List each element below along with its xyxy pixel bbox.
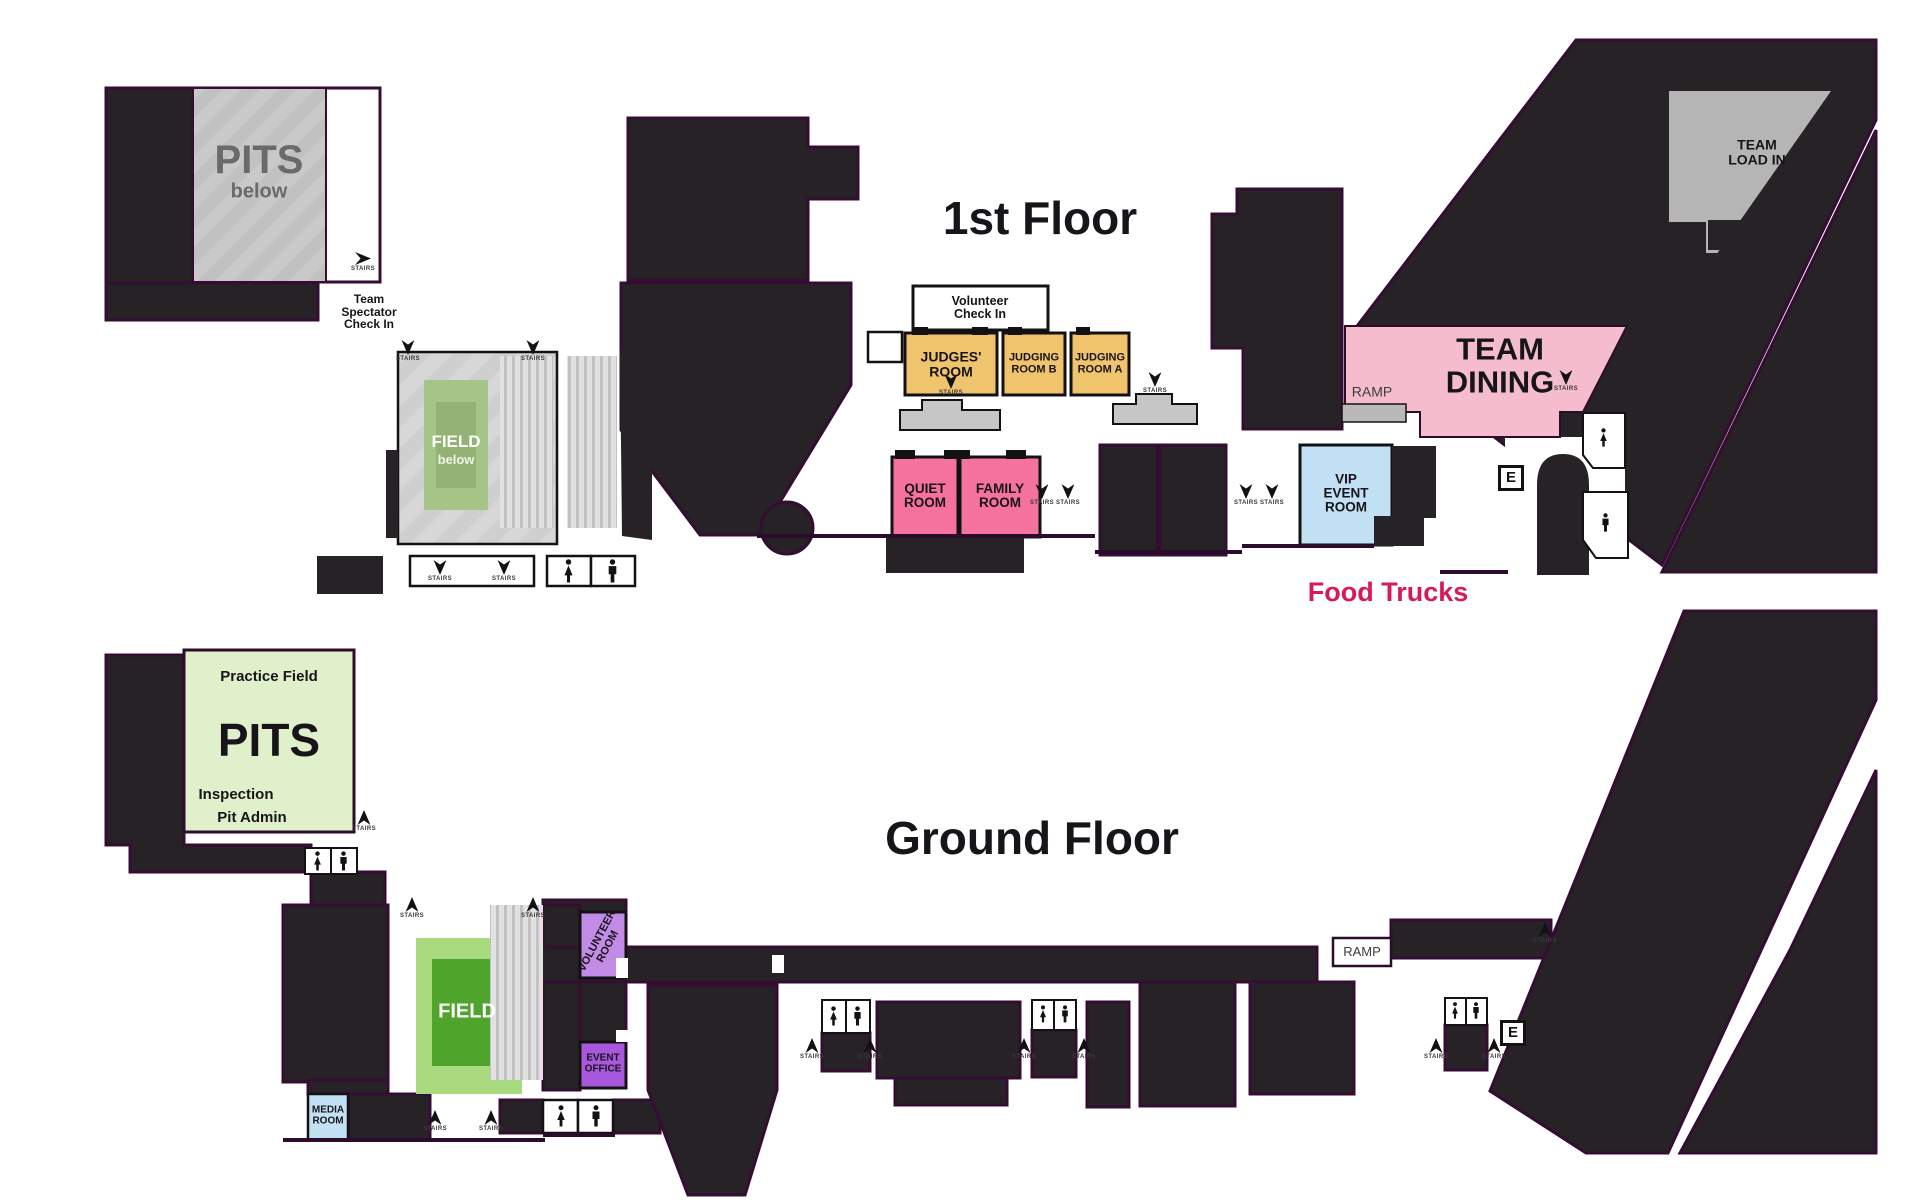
stairs-marker: STAIRS <box>1482 1038 1506 1060</box>
stairs-down-icon <box>527 340 540 355</box>
judging-room-b-label: JUDGING ROOM B <box>1009 352 1059 375</box>
field-label: FIELD <box>438 1002 496 1023</box>
practice-field-label: Practice Field <box>220 669 318 685</box>
judging-room-a-label: JUDGING ROOM A <box>1075 352 1125 375</box>
volunteer-check-in-label: Volunteer Check In <box>952 295 1009 321</box>
stairs-marker: STAIRS <box>1072 1038 1096 1060</box>
stairs-marker: STAIRS <box>939 374 963 396</box>
stairs-marker: STAIRS <box>1260 484 1284 506</box>
quiet-room-label: QUIET ROOM <box>904 482 946 510</box>
stairs-marker: STAIRS <box>423 1110 447 1132</box>
stairs-marker: STAIRS <box>352 810 376 832</box>
stairs-marker: STAIRS <box>1533 922 1557 944</box>
venue-floor-plan: PITS below Team Spectator Check In 1st F… <box>0 0 1920 1200</box>
elevator-icon: E <box>1498 465 1524 491</box>
stairs-down-icon <box>1266 484 1279 499</box>
pits-label: PITS <box>218 716 320 764</box>
stairs-down-icon <box>1062 484 1075 499</box>
team-load-in-label: TEAM LOAD IN <box>1728 137 1786 166</box>
stairs-marker: STAIRS <box>1424 1038 1448 1060</box>
inspection-label: Inspection <box>198 787 273 803</box>
ramp-label-first-floor: RAMP <box>1352 385 1392 400</box>
team-spectator-check-in-label: Team Spectator Check In <box>341 293 396 331</box>
event-office-label: EVENT OFFICE <box>585 1054 622 1075</box>
food-trucks-label: Food Trucks <box>1308 578 1469 606</box>
pit-admin-label: Pit Admin <box>217 810 286 826</box>
labels-overlay: PITS below Team Spectator Check In 1st F… <box>0 0 1920 1200</box>
vip-event-room-label: VIP EVENT ROOM <box>1323 473 1368 516</box>
stairs-marker: STAIRS <box>479 1110 503 1132</box>
stairs-marker: STAIRS <box>400 897 424 919</box>
stairs-down-icon <box>434 560 447 575</box>
stairs-up-icon <box>864 1038 877 1053</box>
stairs-up-icon <box>527 897 540 912</box>
stairs-right-icon <box>355 252 371 265</box>
stairs-marker: STAIRS <box>396 340 420 362</box>
stairs-down-icon <box>498 560 511 575</box>
stairs-down-icon <box>1149 372 1162 387</box>
stairs-up-icon <box>1539 922 1552 937</box>
field-below-subtitle: below <box>438 453 475 467</box>
ground-floor-title: Ground Floor <box>885 814 1179 862</box>
stairs-marker: STAIRS <box>800 1038 824 1060</box>
team-dining-label: TEAM DINING <box>1446 333 1555 398</box>
stairs-up-icon <box>1078 1038 1091 1053</box>
stairs-marker: STAIRS <box>492 560 516 582</box>
stairs-down-icon <box>1240 484 1253 499</box>
stairs-up-icon <box>1488 1038 1501 1053</box>
media-room-label: MEDIA ROOM <box>312 1106 344 1127</box>
stairs-marker: STAIRS <box>1143 372 1167 394</box>
volunteer-room-label: VOLUNTEER ROOM <box>577 909 629 980</box>
stairs-down-icon <box>1560 370 1573 385</box>
pits-below-title: PITS <box>215 139 304 181</box>
stairs-marker: STAIRS <box>428 560 452 582</box>
stairs-up-icon <box>806 1038 819 1053</box>
stairs-marker: STAIRS <box>521 897 545 919</box>
field-below-title: FIELD <box>431 433 480 451</box>
family-room-label: FAMILY ROOM <box>976 482 1024 510</box>
stairs-marker: STAIRS <box>1554 370 1578 392</box>
stairs-up-icon <box>406 897 419 912</box>
stairs-marker: STAIRS <box>1012 1038 1036 1060</box>
stairs-marker: STAIRS <box>858 1038 882 1060</box>
stairs-up-icon <box>1018 1038 1031 1053</box>
stairs-down-icon <box>945 374 958 389</box>
first-floor-title: 1st Floor <box>943 194 1137 242</box>
stairs-up-icon <box>429 1110 442 1125</box>
stairs-marker: STAIRS <box>521 340 545 362</box>
stairs-down-icon <box>402 340 415 355</box>
stairs-marker: STAIRS <box>351 252 375 272</box>
stairs-marker: STAIRS <box>1056 484 1080 506</box>
stairs-marker: STAIRS <box>1030 484 1054 506</box>
stairs-marker: STAIRS <box>1234 484 1258 506</box>
stairs-up-icon <box>485 1110 498 1125</box>
stairs-up-icon <box>358 810 371 825</box>
ramp-label-ground-floor: RAMP <box>1343 945 1381 959</box>
stairs-down-icon <box>1036 484 1049 499</box>
pits-below-subtitle: below <box>231 182 288 203</box>
stairs-up-icon <box>1430 1038 1443 1053</box>
